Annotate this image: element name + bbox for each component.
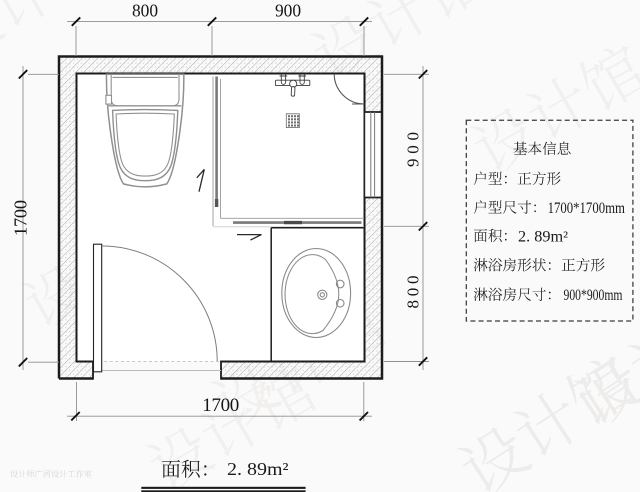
svg-text:2. 89m²: 2. 89m² (227, 459, 289, 479)
svg-text:800: 800 (132, 0, 158, 20)
svg-text:1700*1700mm: 1700*1700mm (548, 200, 625, 217)
svg-text:900: 900 (275, 0, 301, 20)
svg-text:900: 900 (403, 132, 422, 167)
svg-text:800: 800 (403, 276, 422, 309)
svg-text:900*900mm: 900*900mm (564, 287, 623, 304)
svg-text:1700: 1700 (202, 395, 239, 416)
svg-text:2. 89m²: 2. 89m² (518, 228, 568, 245)
svg-text:1700: 1700 (11, 200, 31, 236)
